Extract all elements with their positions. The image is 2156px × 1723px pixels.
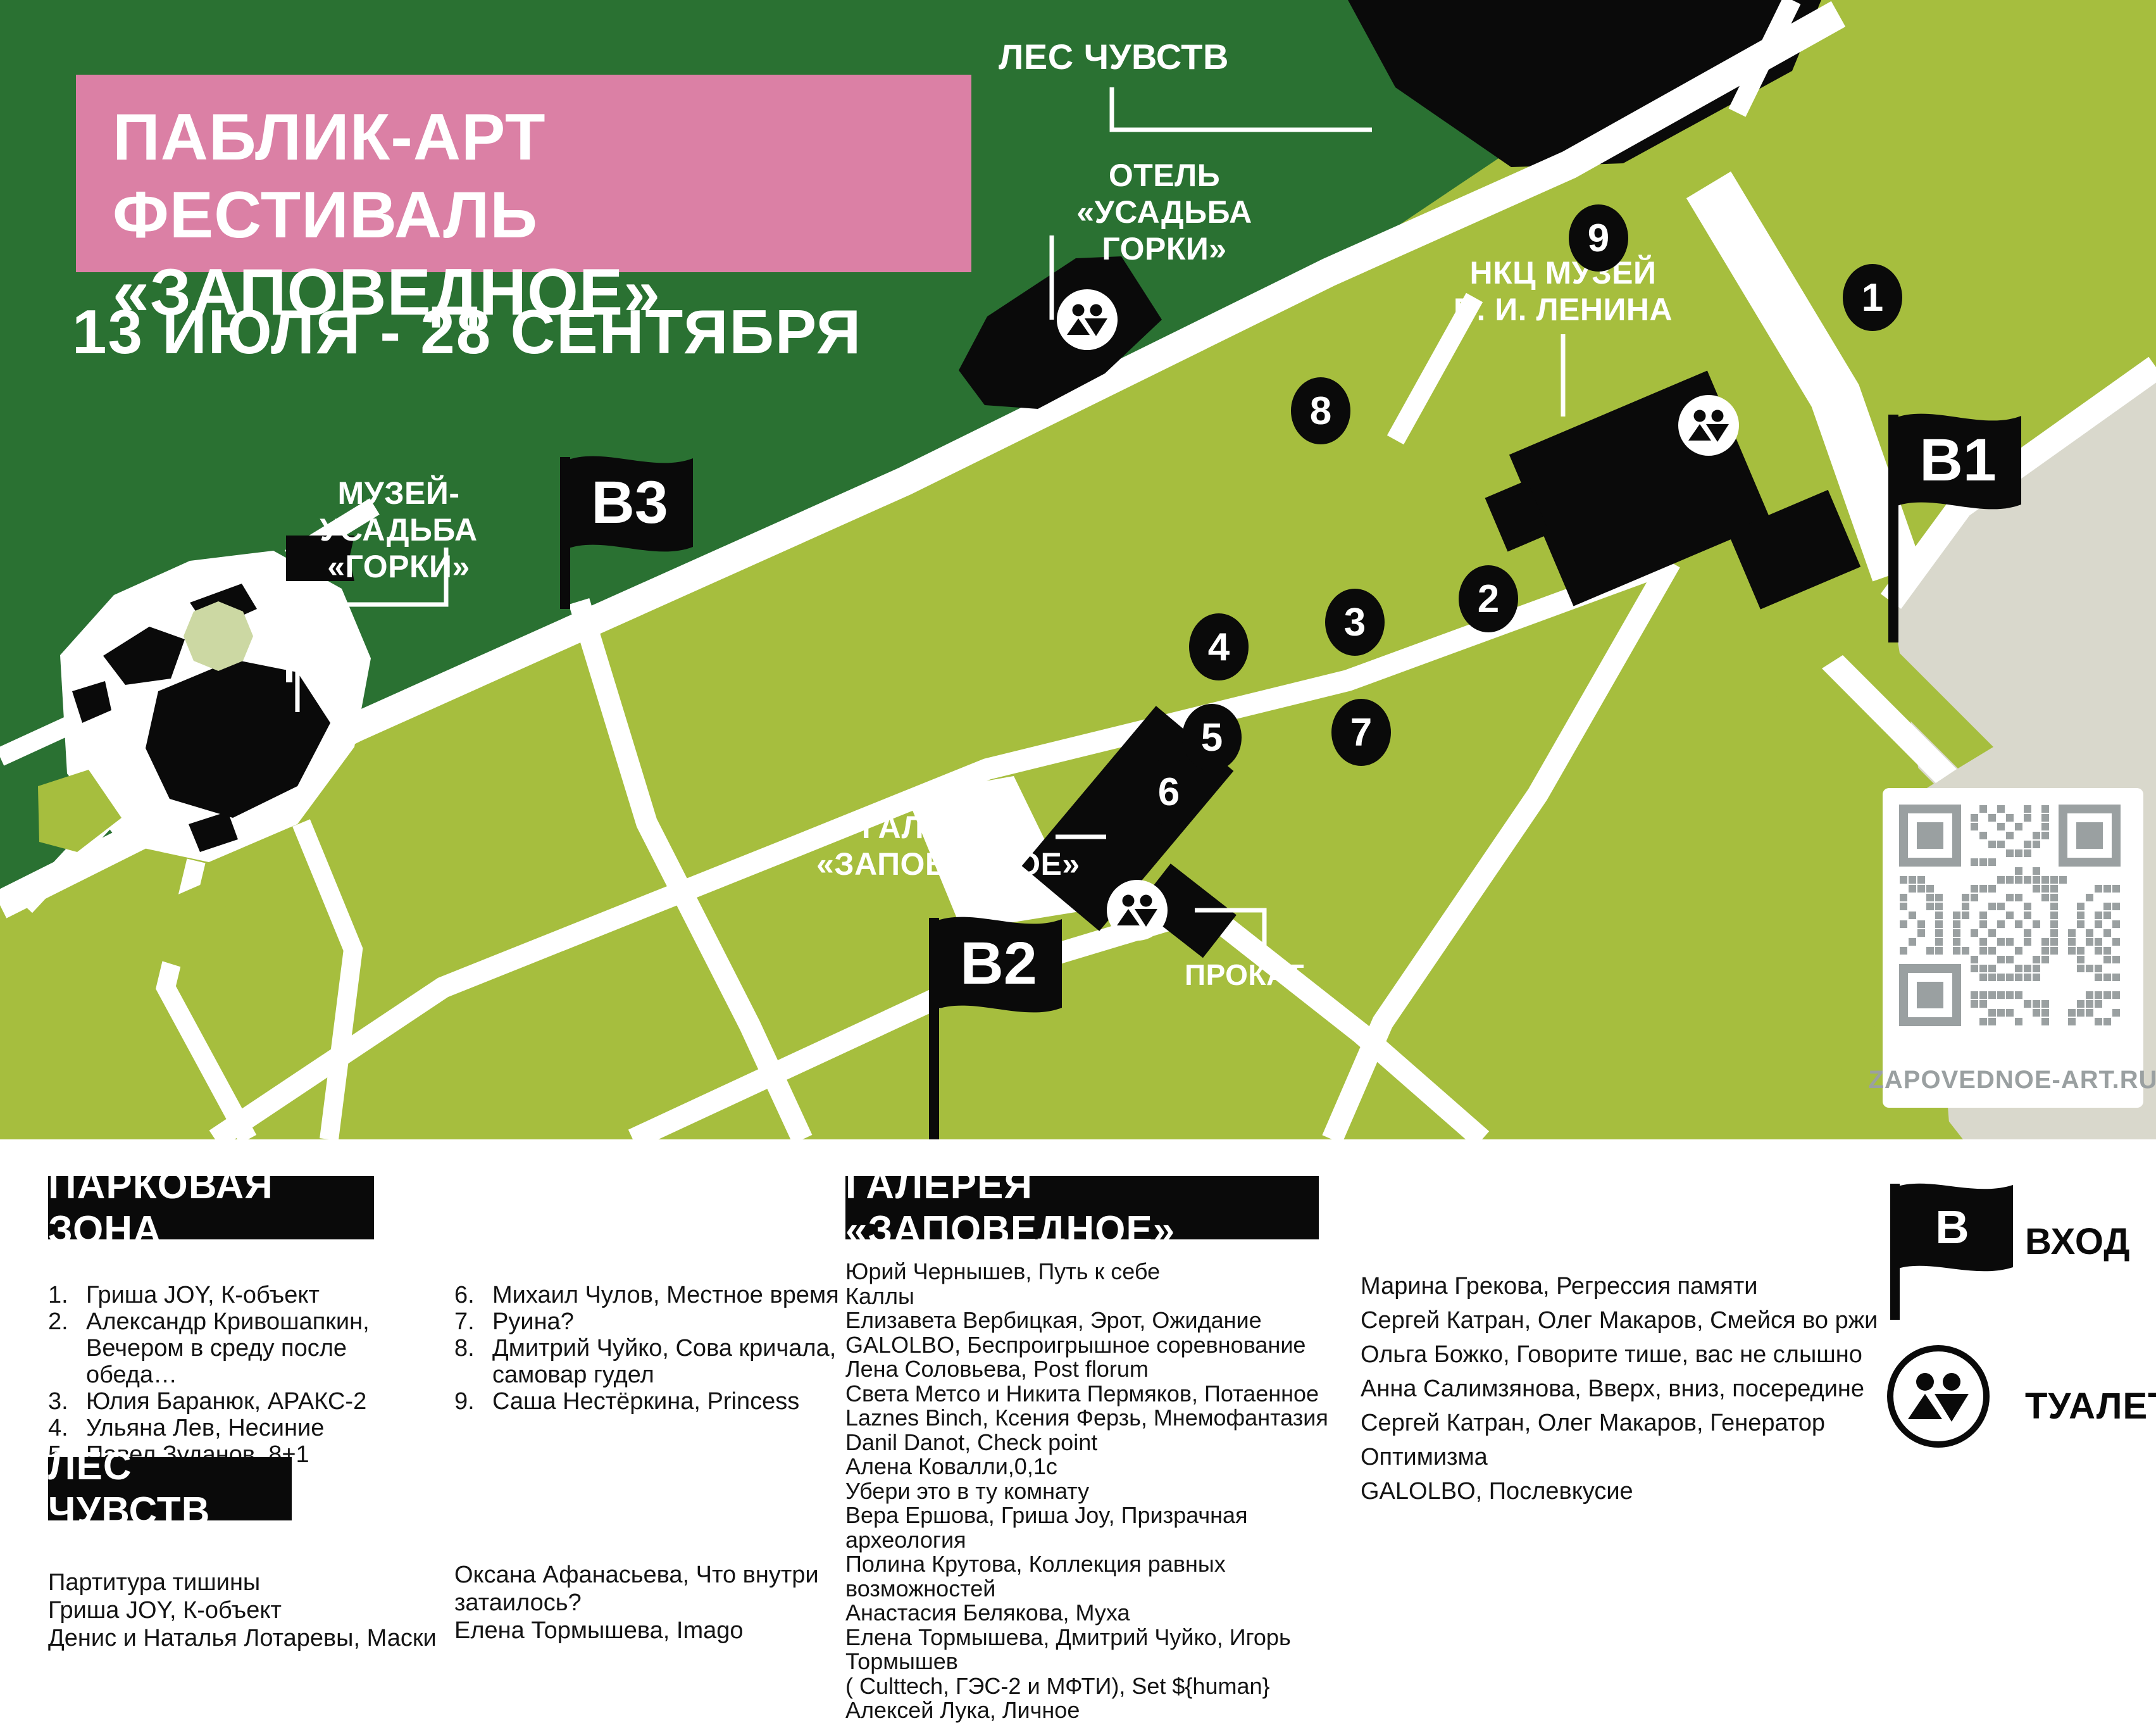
list-item: 3.Юлия Баранюк, АРАКС-2 xyxy=(48,1388,440,1415)
list-item: 6.Михаил Чулов, Местное время xyxy=(454,1282,847,1308)
gallery-list-1: Юрий Чернышев, Путь к себе Каллы Елизаве… xyxy=(845,1260,1352,1723)
map-marker-1: 1 xyxy=(1843,264,1902,331)
list-item: 1.Гриша JOY, К-объект xyxy=(48,1282,440,1308)
toilet-legend-icon xyxy=(1883,1341,1997,1455)
forest-list-1: Партитура тишины Гриша JOY, К-объект Ден… xyxy=(48,1569,453,1652)
forest-list-2: Оксана Афанасьева, Что внутри затаилось?… xyxy=(454,1561,859,1645)
map-label-hotel: ОТЕЛЬ «УСАДЬБА ГОРКИ» xyxy=(1013,157,1316,267)
legend-park-zone-header: ПАРКОВАЯ ЗОНА xyxy=(48,1176,374,1239)
map-label-lenin-museum: НКЦ МУЗЕЙ В. И. ЛЕНИНА xyxy=(1443,254,1683,328)
toilet-icon-museum xyxy=(1678,395,1739,456)
map-marker-9: 9 xyxy=(1569,204,1628,272)
flag-b2-label: В2 xyxy=(960,930,1037,997)
festival-title: ПАБЛИК-АРТ ФЕСТИВАЛЬ «ЗАПОВЕДНОЕ» xyxy=(76,75,971,272)
qr-caption: ZAPOVEDNOE-ART.RU xyxy=(1868,1066,2156,1094)
list-item: 9.Саша Нестёркина, Princess xyxy=(454,1388,847,1415)
map-marker-5: 5 xyxy=(1182,704,1242,771)
toilet-icon-rental xyxy=(1107,880,1168,941)
toilet-icon-hotel xyxy=(1057,289,1118,350)
gallery-list-2: Марина Грекова, Регрессия памяти Сергей … xyxy=(1361,1269,1898,1508)
flag-b3-label: В3 xyxy=(591,469,668,536)
entrance-flag-icon: В xyxy=(1889,1179,2028,1331)
qr-panel: ZAPOVEDNOE-ART.RU xyxy=(1868,788,2156,1108)
festival-map-poster: { "title": {"line1": "ПАБЛИК-АРТ ФЕСТИВА… xyxy=(0,0,2156,1651)
flag-b1-label: В1 xyxy=(1919,427,1996,494)
toilet-label: ТУАЛЕТ xyxy=(2025,1385,2156,1427)
legend-forest-header: ЛЕС ЧУВСТВ xyxy=(48,1457,292,1520)
map-marker-4: 4 xyxy=(1189,613,1249,680)
map-label-gorki-estate: МУЗЕЙ-УСАДЬБА «ГОРКИ» xyxy=(266,475,532,585)
list-item: 7.Руина? xyxy=(454,1308,847,1335)
map-label-forest: ЛЕС ЧУВСТВ xyxy=(987,37,1240,78)
entrance-flag-letter: В xyxy=(1935,1201,1969,1253)
park-zone-list-2: 6.Михаил Чулов, Местное время 7.Руина? 8… xyxy=(454,1282,847,1415)
entrance-label: ВХОД xyxy=(2025,1220,2131,1263)
map-label-gallery: ГАЛЕРЕЯ «ЗАПОВЕДНОЕ» xyxy=(816,809,1057,882)
legend-gallery-header: ГАЛЕРЕЯ «ЗАПОВЕДНОЕ» xyxy=(845,1176,1319,1239)
map-marker-8: 8 xyxy=(1291,377,1350,444)
map-marker-3: 3 xyxy=(1325,589,1385,656)
list-item: 4.Ульяна Лев, Несиние xyxy=(48,1415,440,1441)
list-item: 2.Александр Кривошапкин, Вечером в среду… xyxy=(48,1308,440,1388)
festival-dates: 13 ИЮЛЯ - 28 СЕНТЯБРЯ xyxy=(72,296,862,368)
estate-pond xyxy=(184,601,253,671)
park-zone-list-1: 1.Гриша JOY, К-объект 2.Александр Кривош… xyxy=(48,1282,440,1468)
list-item: 8.Дмитрий Чуйко, Сова кричала, самовар г… xyxy=(454,1335,847,1388)
map-marker-6: 6 xyxy=(1139,758,1199,825)
map-marker-2: 2 xyxy=(1459,565,1518,632)
map-label-rental: ПРОКАТ xyxy=(1185,958,1304,992)
map-marker-7: 7 xyxy=(1331,699,1391,766)
